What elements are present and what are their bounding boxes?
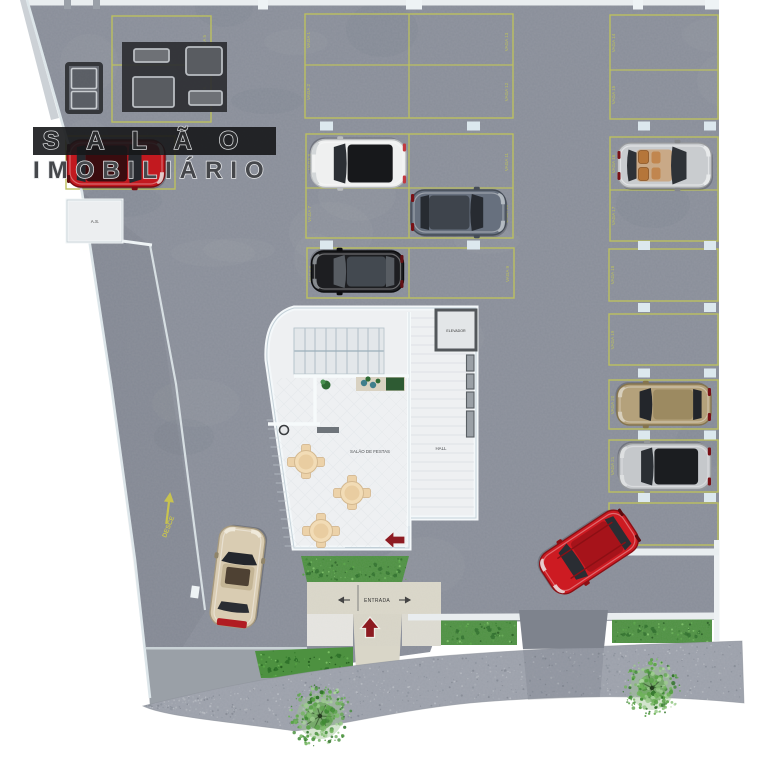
svg-text:ELEVADOR: ELEVADOR — [446, 329, 466, 333]
svg-text:VAGA 9: VAGA 9 — [505, 266, 510, 282]
svg-text:VAGA 17: VAGA 17 — [611, 206, 616, 225]
svg-text:VAGA 12: VAGA 12 — [504, 82, 509, 101]
svg-text:VAGA 7: VAGA 7 — [307, 206, 312, 222]
svg-text:VAGA 13: VAGA 13 — [504, 32, 509, 51]
svg-text:VAGA 18: VAGA 18 — [610, 265, 615, 284]
svg-text:VAGA 19: VAGA 19 — [610, 330, 615, 349]
svg-text:VAGA 11: VAGA 11 — [504, 152, 509, 171]
svg-text:VAGA 20: VAGA 20 — [610, 395, 615, 414]
svg-text:VAGA 1: VAGA 1 — [306, 32, 311, 48]
svg-text:VAGA 21: VAGA 21 — [610, 456, 615, 475]
svg-text:HALL: HALL — [436, 446, 448, 451]
svg-text:A.S.: A.S. — [91, 219, 100, 224]
svg-text:VAGA 16: VAGA 16 — [611, 154, 616, 173]
svg-text:VAGA 14: VAGA 14 — [611, 33, 616, 52]
svg-text:VAGA 2: VAGA 2 — [306, 84, 311, 100]
svg-text:IMOBILIÁRIO: IMOBILIÁRIO — [33, 156, 272, 184]
svg-text:VAGA 15: VAGA 15 — [611, 85, 616, 104]
svg-text:SALÃO: SALÃO — [43, 125, 266, 155]
svg-text:ENTRADA: ENTRADA — [364, 598, 390, 604]
svg-text:SALÃO DE FESTAS: SALÃO DE FESTAS — [350, 449, 390, 454]
